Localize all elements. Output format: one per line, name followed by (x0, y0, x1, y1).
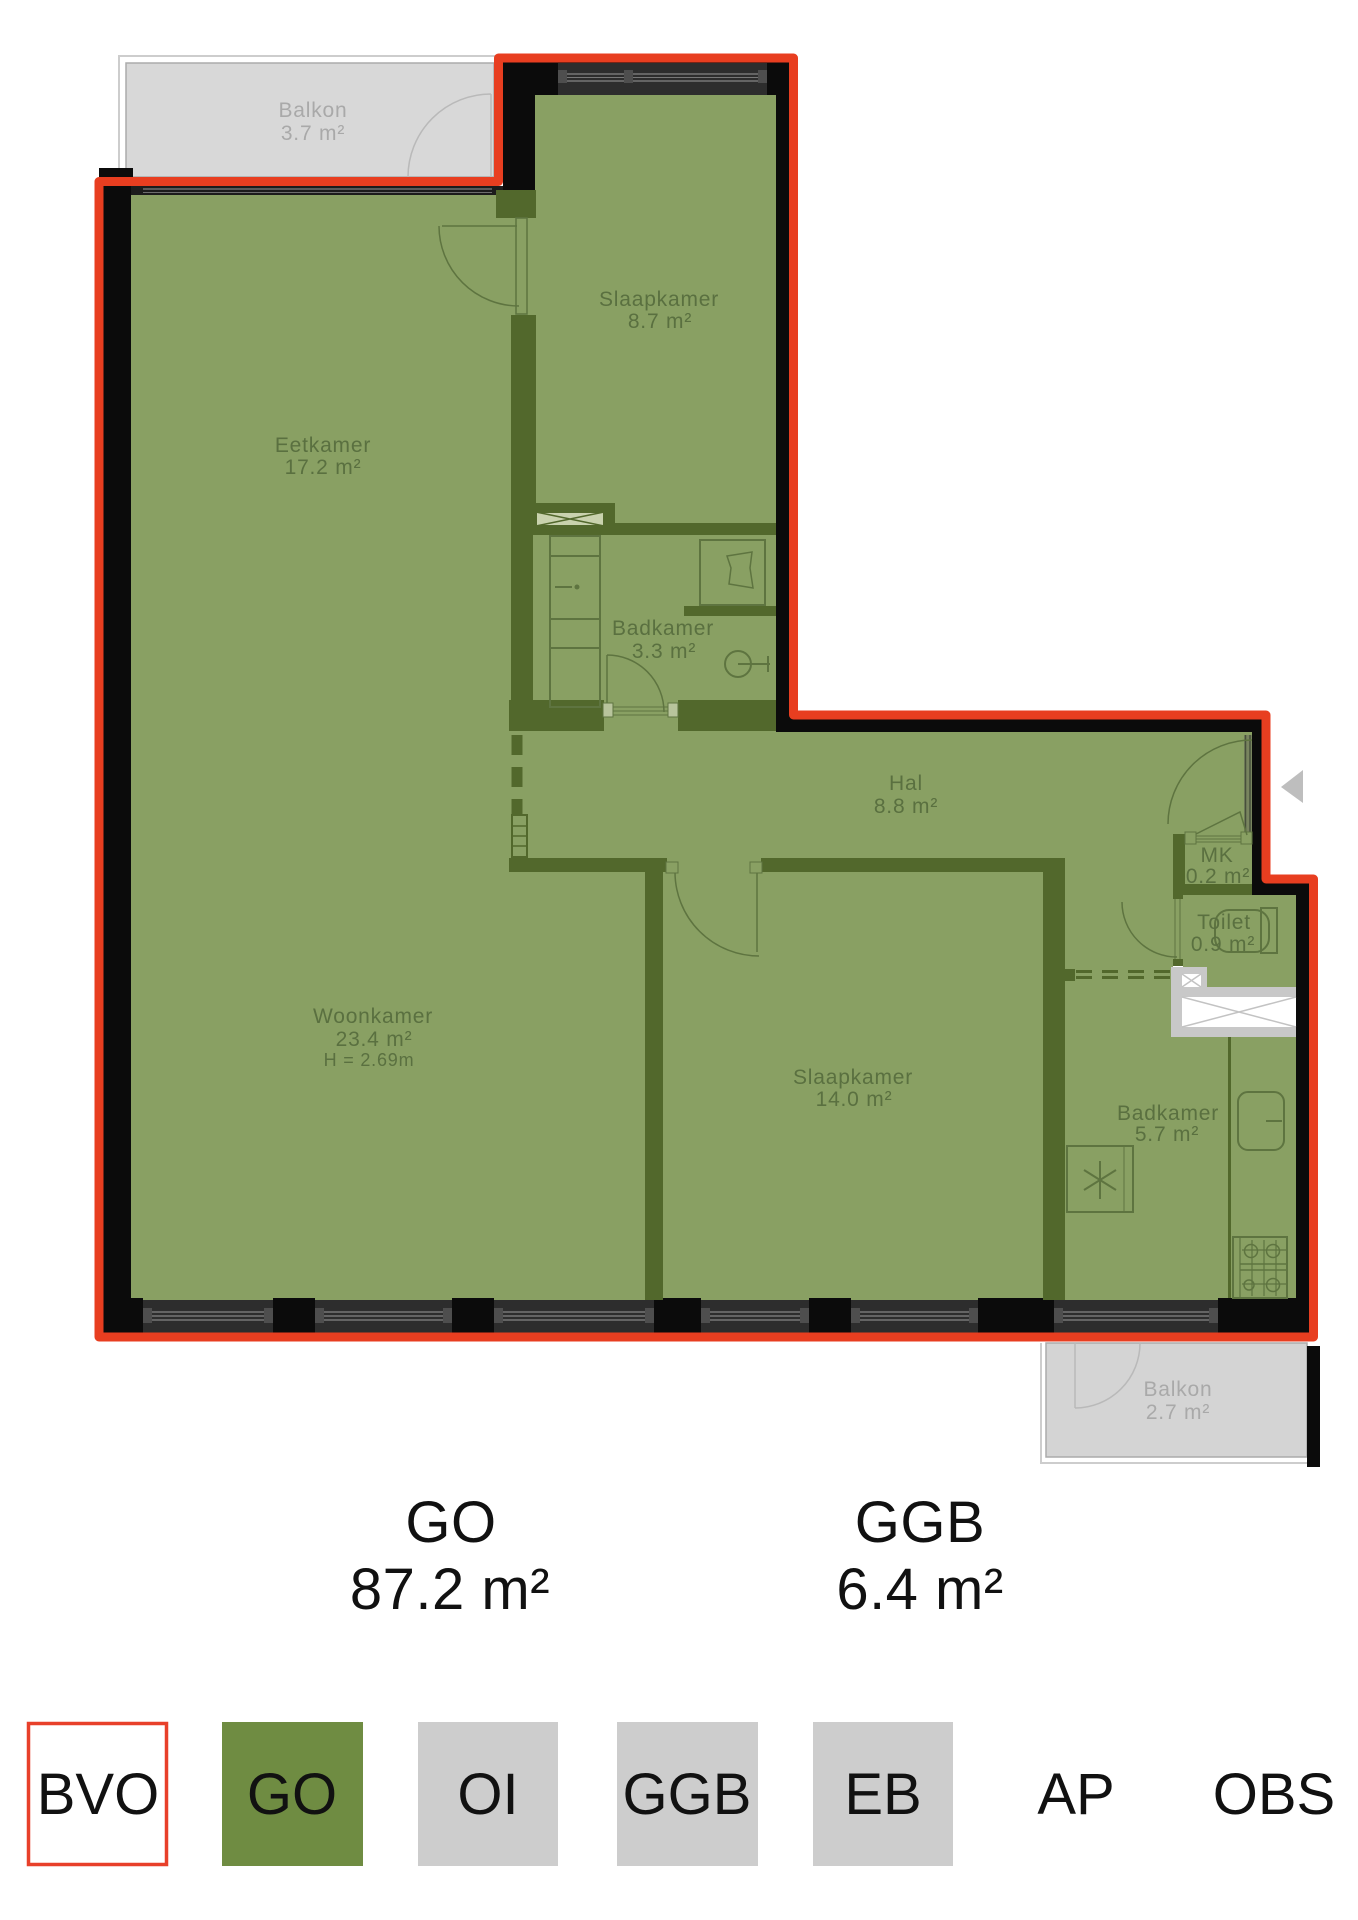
svg-text:87.2 m²: 87.2 m² (350, 1557, 550, 1622)
svg-text:Balkon: Balkon (1143, 1378, 1212, 1401)
svg-text:17.2 m²: 17.2 m² (285, 456, 362, 479)
svg-text:Slaapkamer: Slaapkamer (599, 288, 719, 311)
svg-text:Badkamer: Badkamer (1117, 1102, 1219, 1125)
svg-text:23.4 m²: 23.4 m² (336, 1028, 413, 1051)
svg-text:8.8 m²: 8.8 m² (874, 795, 938, 818)
svg-text:2.7 m²: 2.7 m² (1146, 1401, 1210, 1424)
svg-text:0.2 m²: 0.2 m² (1186, 865, 1250, 888)
svg-text:OI: OI (457, 1762, 518, 1827)
svg-text:Hal: Hal (889, 772, 923, 795)
svg-text:BVO: BVO (37, 1762, 160, 1827)
svg-text:3.7 m²: 3.7 m² (281, 122, 345, 145)
svg-text:EB: EB (844, 1762, 921, 1827)
svg-text:MK: MK (1200, 844, 1233, 867)
svg-text:Toilet: Toilet (1197, 911, 1251, 934)
svg-text:14.0 m²: 14.0 m² (816, 1088, 893, 1111)
svg-text:AP: AP (1037, 1762, 1114, 1827)
svg-text:Badkamer: Badkamer (612, 617, 714, 640)
svg-text:H = 2.69m: H = 2.69m (324, 1050, 415, 1070)
svg-text:0.9 m²: 0.9 m² (1191, 933, 1255, 956)
svg-text:3.3 m²: 3.3 m² (632, 640, 696, 663)
svg-text:GO: GO (405, 1490, 496, 1555)
svg-text:Slaapkamer: Slaapkamer (793, 1066, 913, 1089)
svg-text:Balkon: Balkon (278, 99, 347, 122)
svg-text:OBS: OBS (1213, 1762, 1336, 1827)
svg-text:GO: GO (247, 1762, 337, 1827)
svg-text:6.4 m²: 6.4 m² (836, 1557, 1003, 1622)
svg-text:GGB: GGB (855, 1490, 985, 1555)
svg-text:5.7 m²: 5.7 m² (1135, 1123, 1199, 1146)
svg-text:Eetkamer: Eetkamer (275, 434, 371, 457)
svg-text:8.7 m²: 8.7 m² (628, 310, 692, 333)
svg-text:Woonkamer: Woonkamer (313, 1005, 433, 1028)
svg-text:GGB: GGB (623, 1762, 752, 1827)
